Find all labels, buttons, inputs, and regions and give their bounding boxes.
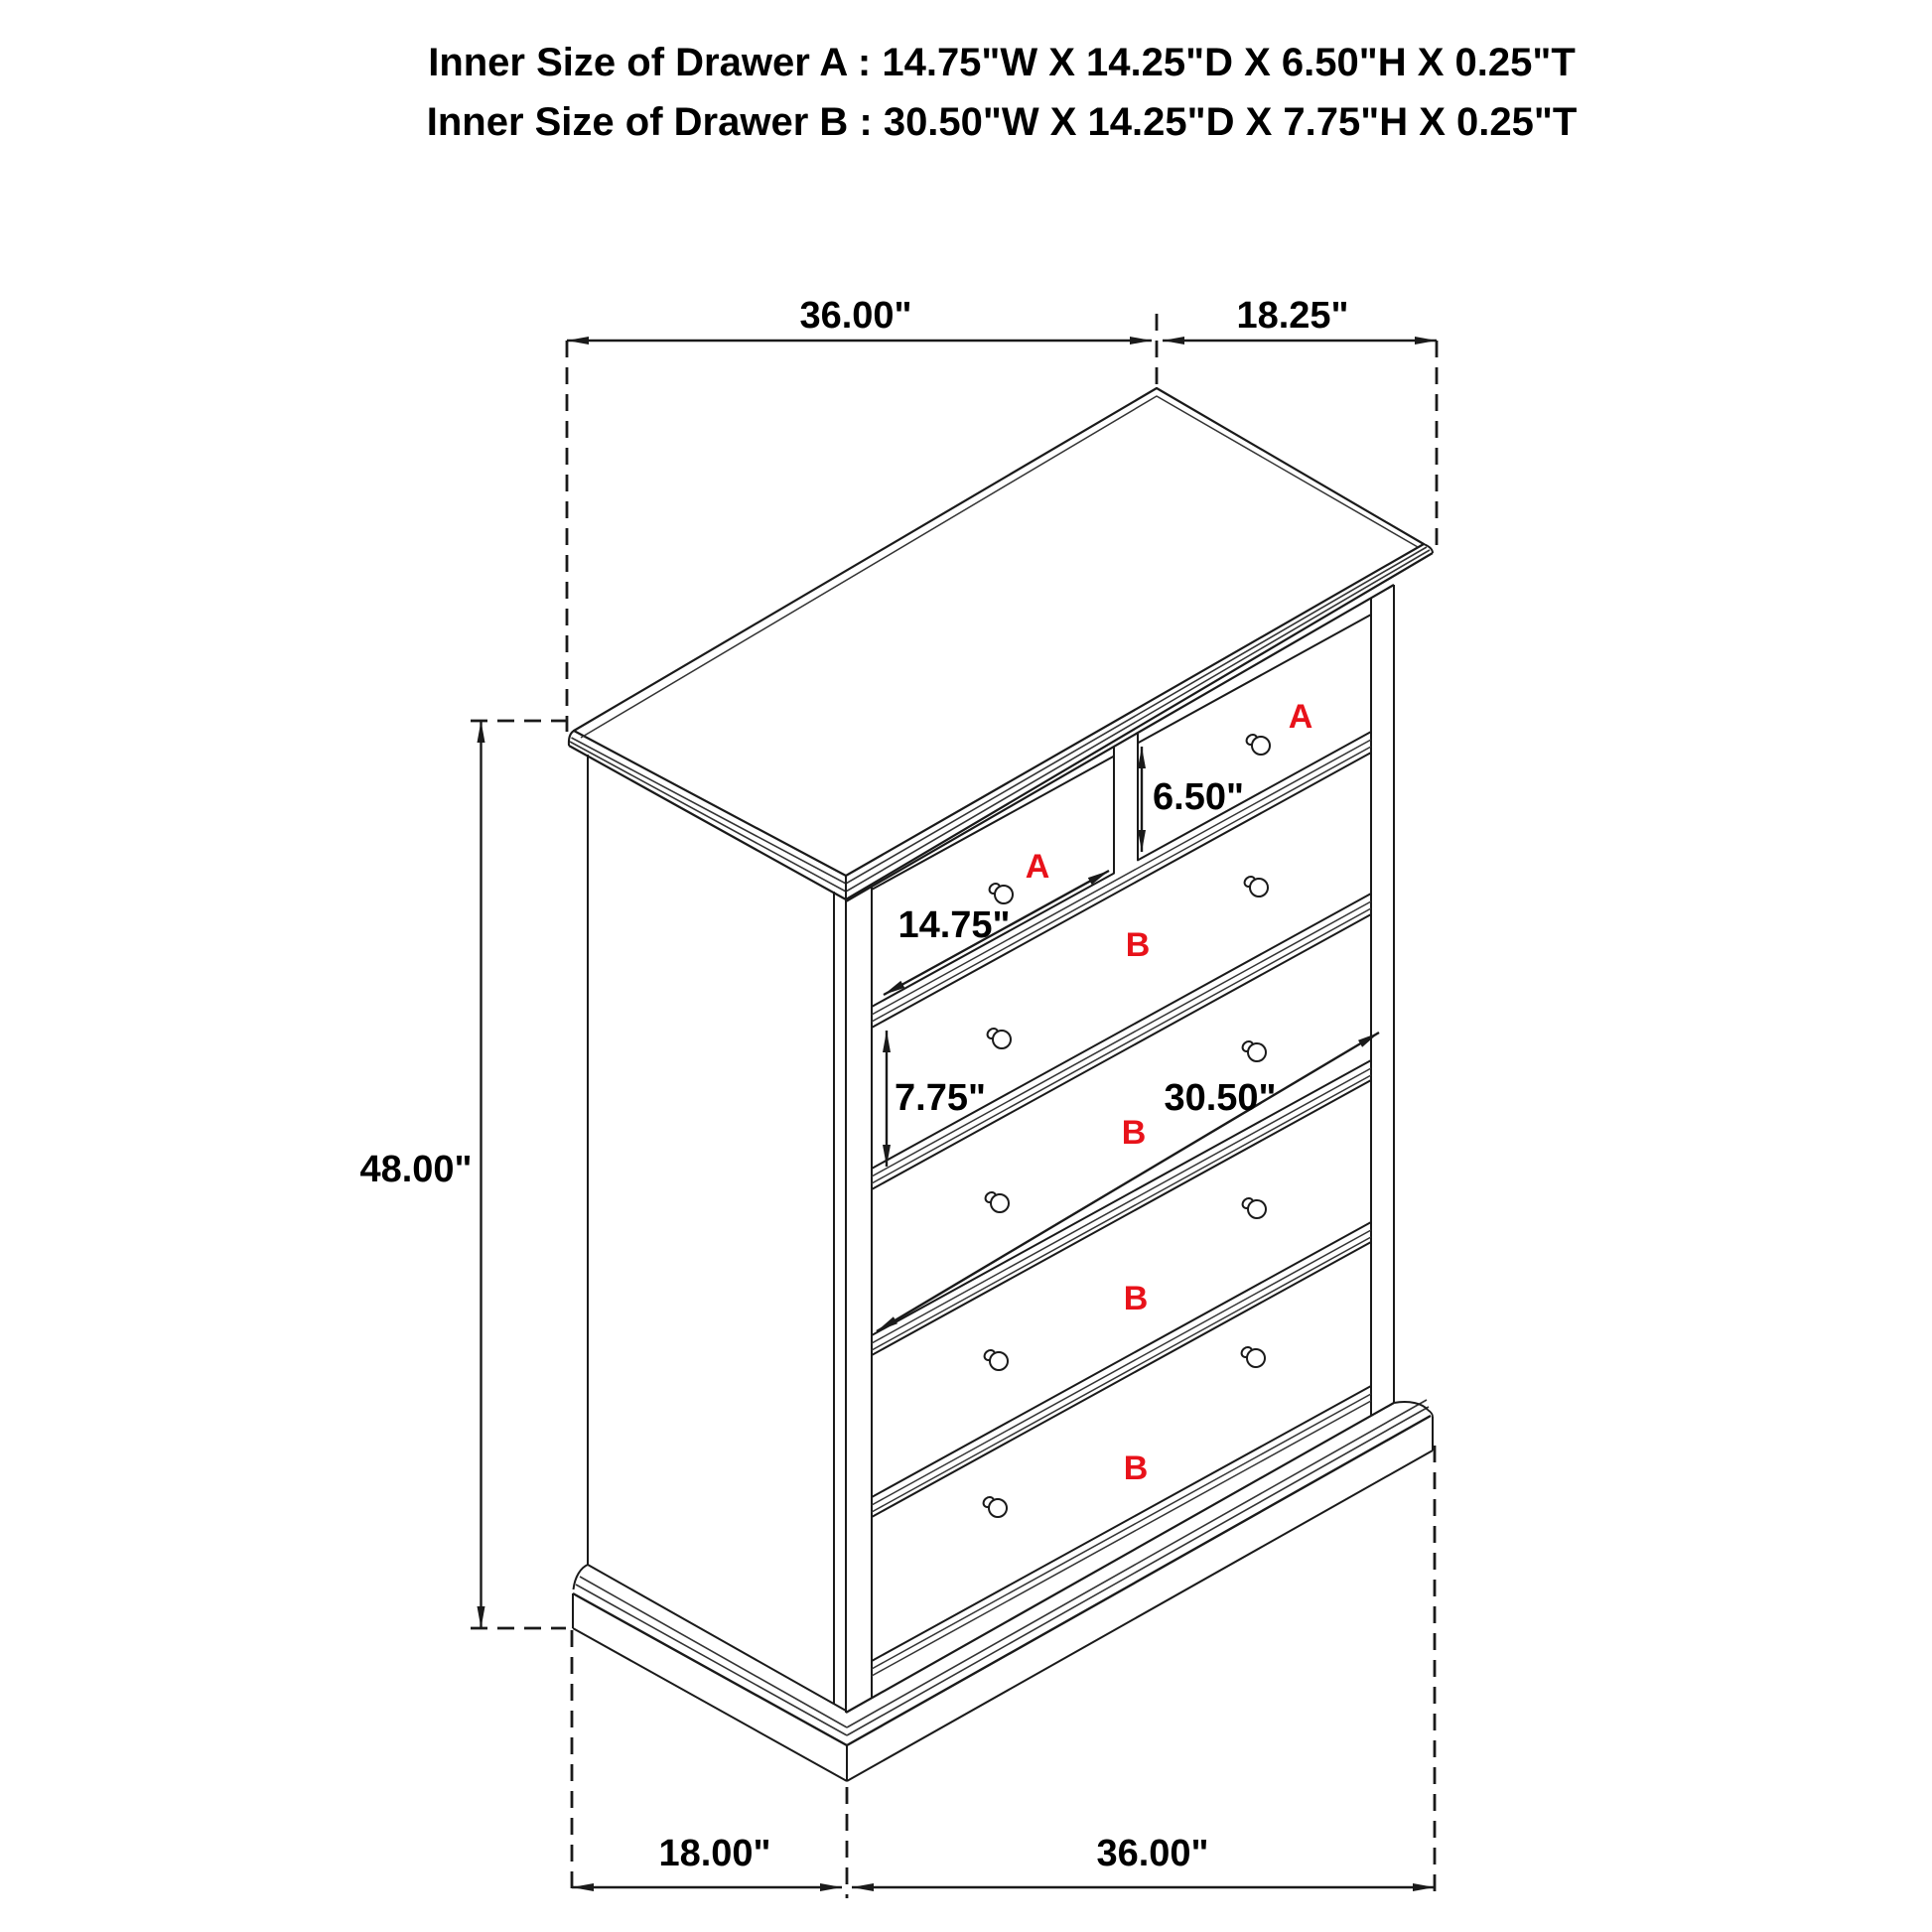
svg-text:B: B	[1124, 1449, 1149, 1487]
svg-text:36.00": 36.00"	[1096, 1833, 1208, 1874]
svg-text:18.00": 18.00"	[658, 1833, 770, 1874]
svg-text:18.25": 18.25"	[1236, 295, 1348, 337]
svg-text:30.50": 30.50"	[1164, 1077, 1276, 1119]
svg-text:6.50": 6.50"	[1153, 776, 1244, 818]
svg-text:B: B	[1124, 1280, 1149, 1317]
svg-text:Inner Size of Drawer A : 14.75: Inner Size of Drawer A : 14.75"W X 14.25…	[428, 41, 1576, 84]
svg-text:36.00": 36.00"	[799, 295, 911, 337]
svg-text:7.75": 7.75"	[895, 1077, 986, 1119]
svg-text:A: A	[1289, 698, 1313, 736]
svg-text:Inner Size of Drawer B : 30.50: Inner Size of Drawer B : 30.50"W X 14.25…	[427, 100, 1578, 144]
svg-text:48.00": 48.00"	[359, 1149, 472, 1190]
svg-text:B: B	[1126, 926, 1151, 964]
svg-text:A: A	[1026, 848, 1050, 886]
svg-text:B: B	[1122, 1114, 1147, 1152]
svg-text:14.75": 14.75"	[897, 904, 1010, 946]
